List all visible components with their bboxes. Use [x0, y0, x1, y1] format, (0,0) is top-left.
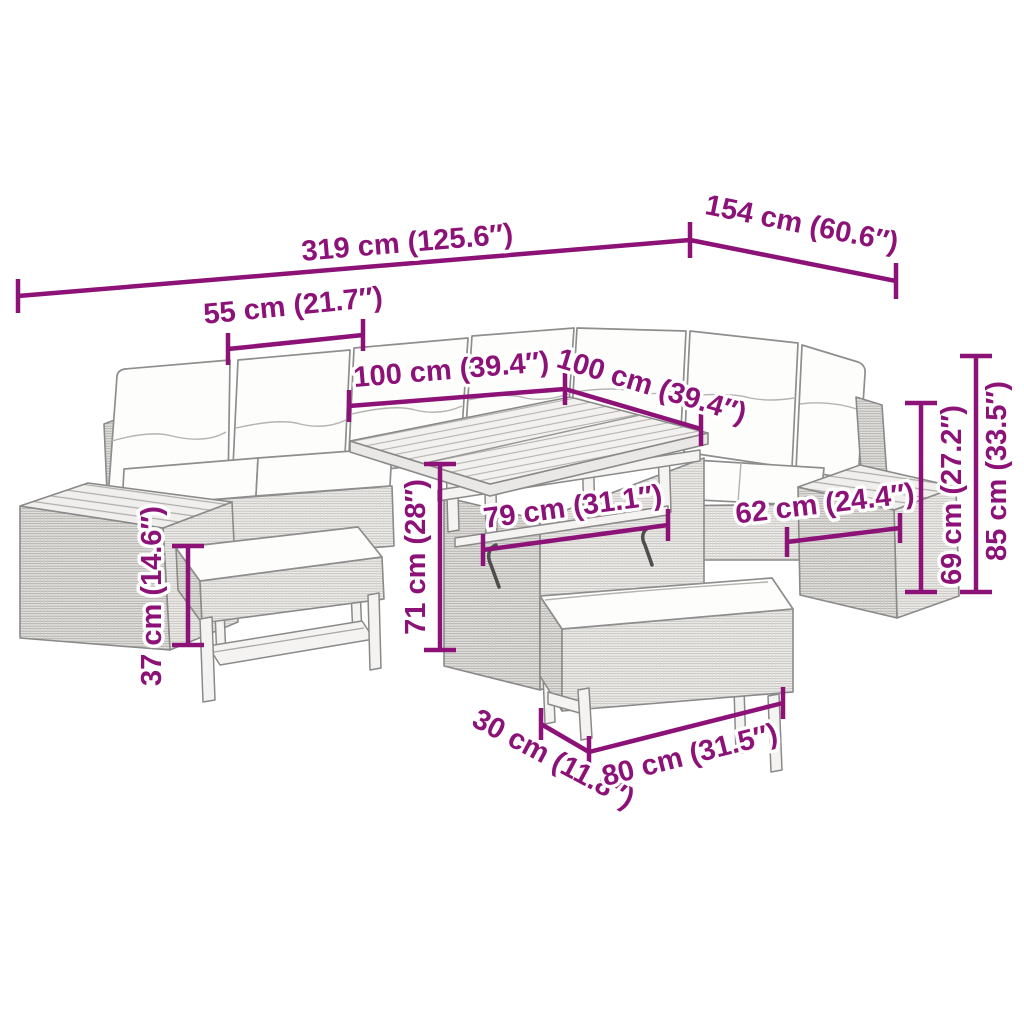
left-bench: [176, 527, 384, 702]
dim-seat-width-label: 55 cm (21.7″): [202, 281, 384, 331]
dim-table-height-label: 71 cm (28″): [400, 479, 432, 635]
product-dimension-image: 319 cm (125.6″) 154 cm (60.6″) 55 cm (21…: [0, 0, 1024, 1024]
dim-bench-height-label: 37 cm (14.6″): [136, 506, 168, 686]
dim-bench-length-label: 80 cm (31.5″): [599, 718, 781, 793]
furniture-diagram: 319 cm (125.6″) 154 cm (60.6″) 55 cm (21…: [0, 0, 1024, 1024]
bench-shelf: [208, 621, 374, 665]
dim-total-depth: 154 cm (60.6″): [690, 189, 901, 299]
dim-backrest-height-label: 69 cm (27.2″): [936, 405, 968, 585]
dim-total-length-label: 319 cm (125.6″): [300, 218, 514, 268]
dim-total-height-label: 85 cm (33.5″): [981, 381, 1013, 561]
